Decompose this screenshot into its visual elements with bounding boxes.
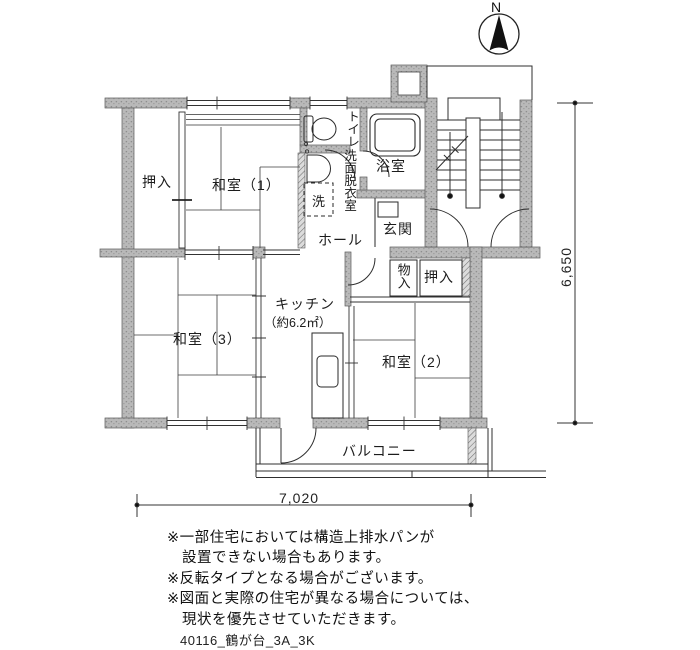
dimension-width-label: 7,020	[279, 490, 319, 506]
note-line: 設置できない場合もあります。	[167, 548, 479, 568]
stair-break-line	[436, 136, 468, 170]
toilet-icon	[304, 116, 336, 146]
note-line: ※図面と実際の住宅が異なる場合については、	[167, 589, 479, 609]
hall-door-arc	[348, 258, 375, 285]
label-senmen-datsuiishitsu: 洗面脱衣室	[342, 149, 355, 212]
label-washitsu3: 和室（3）	[173, 329, 242, 349]
label-kitchen-area: （約6.2㎡）	[264, 312, 331, 331]
north-arrow-icon	[479, 14, 519, 54]
label-washitsu1: 和室（1）	[212, 175, 281, 195]
label-mono-ire: 物入	[396, 263, 410, 289]
label-balcony: バルコニー	[342, 441, 417, 461]
note-line: 現状を優先させていただきます。	[167, 610, 479, 630]
north-label: N	[491, 0, 501, 15]
label-washitsu2: 和室（2）	[382, 352, 451, 372]
label-toilet: トイレ	[345, 110, 358, 148]
label-oshiire-upper: 押入	[142, 172, 172, 192]
closet-fusuma-band	[172, 112, 192, 248]
dimension-height-label: 6,650	[558, 245, 574, 289]
floor-plan-canvas: 押入 和室（1） トイレ 洗面脱衣室 洗 浴室 ホール 玄関 物入 押入 キッチ…	[0, 0, 700, 650]
note-line: ※一部住宅においては構造上排水パンが	[167, 528, 479, 548]
kitchen-counter	[312, 333, 343, 418]
label-washing-machine: 洗	[312, 191, 326, 210]
pipe-space-interior	[398, 72, 420, 95]
label-oshiire-right: 押入	[424, 267, 454, 287]
washitsu1-track-lines	[186, 115, 300, 126]
label-bath: 浴室	[376, 156, 406, 176]
stairs	[427, 66, 532, 208]
label-hall: ホール	[318, 230, 363, 250]
note-line: ※反転タイプとなる場合がございます。	[167, 569, 479, 589]
bathtub-icon	[370, 114, 420, 156]
disclaimer-notes: ※一部住宅においては構造上排水パンが 設置できない場合もあります。 ※反転タイプ…	[167, 528, 479, 630]
plan-id-label: 40116_鶴が台_3A_3K	[180, 630, 315, 649]
label-kitchen-name: キッチン	[275, 294, 335, 314]
balcony-door-arc	[281, 428, 316, 463]
sink-icon	[305, 150, 330, 182]
label-genkan: 玄関	[383, 219, 413, 239]
